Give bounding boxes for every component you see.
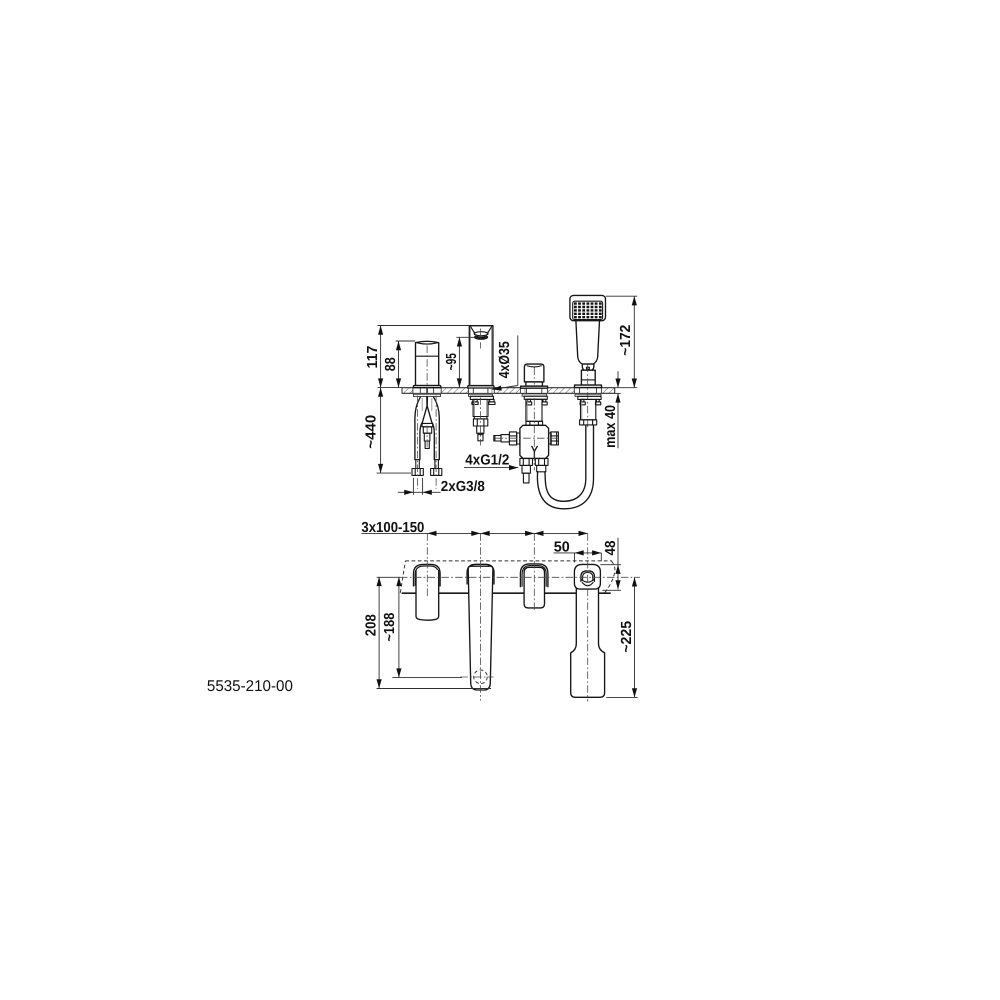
svg-text:~172: ~172: [618, 325, 634, 356]
svg-text:208: 208: [364, 614, 380, 636]
svg-text:~95: ~95: [444, 353, 460, 370]
svg-text:~225: ~225: [619, 621, 635, 653]
svg-text:5535-210-00: 5535-210-00: [207, 678, 293, 695]
svg-text:3x100-150: 3x100-150: [361, 520, 424, 536]
svg-text:88: 88: [383, 357, 399, 371]
svg-text:117: 117: [365, 346, 381, 369]
svg-text:50: 50: [554, 539, 570, 555]
svg-text:48: 48: [603, 541, 619, 556]
svg-text:~440: ~440: [364, 415, 380, 449]
svg-text:~188: ~188: [382, 613, 398, 642]
svg-text:2xG3/8: 2xG3/8: [441, 479, 485, 495]
svg-text:max 40: max 40: [603, 405, 619, 448]
svg-text:4xØ35: 4xØ35: [497, 341, 513, 378]
svg-text:4xG1/2: 4xG1/2: [465, 452, 509, 468]
